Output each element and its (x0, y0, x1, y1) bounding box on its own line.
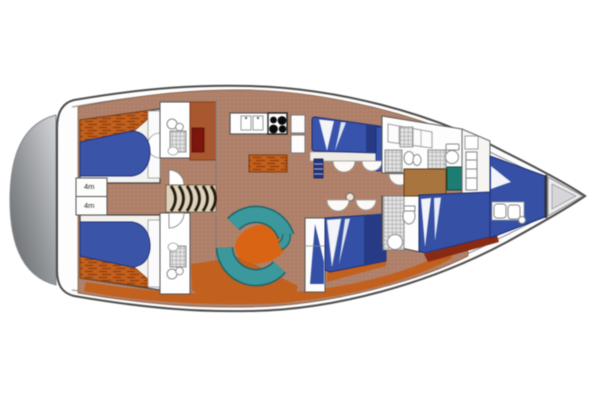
svg-text:4m: 4m (84, 201, 94, 210)
svg-text:4m: 4m (84, 182, 94, 191)
